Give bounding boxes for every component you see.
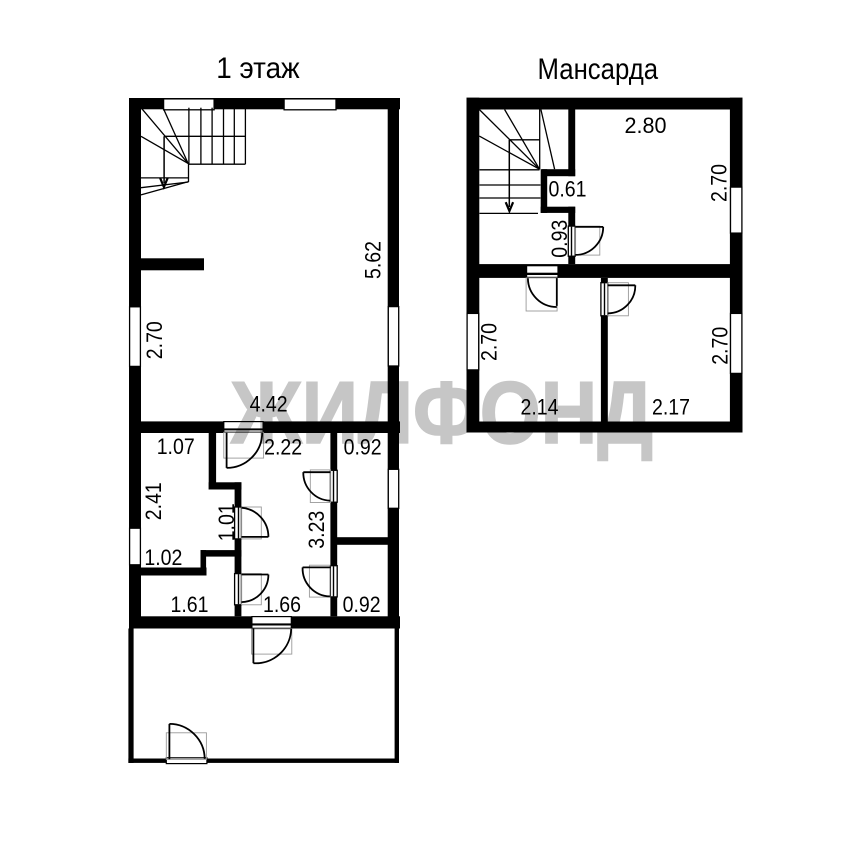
svg-text:0.93: 0.93 bbox=[547, 220, 572, 258]
svg-text:0.61: 0.61 bbox=[549, 177, 587, 202]
svg-text:1.01: 1.01 bbox=[214, 503, 239, 541]
svg-text:Мансарда: Мансарда bbox=[538, 53, 659, 86]
svg-text:1 этаж: 1 этаж bbox=[216, 52, 299, 85]
svg-text:ЖИЛФОНД: ЖИЛФОНД bbox=[230, 363, 653, 462]
svg-text:1.66: 1.66 bbox=[263, 592, 301, 617]
svg-text:2.70: 2.70 bbox=[708, 327, 733, 365]
svg-text:1.02: 1.02 bbox=[144, 545, 182, 570]
svg-text:3.23: 3.23 bbox=[304, 511, 329, 549]
svg-text:0.92: 0.92 bbox=[343, 592, 381, 617]
svg-text:1.07: 1.07 bbox=[157, 434, 195, 459]
svg-text:2.80: 2.80 bbox=[625, 113, 667, 138]
svg-text:2.70: 2.70 bbox=[142, 321, 167, 359]
svg-text:5.62: 5.62 bbox=[361, 241, 386, 279]
svg-text:1.61: 1.61 bbox=[171, 592, 209, 617]
svg-text:2.70: 2.70 bbox=[706, 164, 731, 202]
svg-text:2.17: 2.17 bbox=[652, 395, 690, 420]
svg-text:2.70: 2.70 bbox=[477, 323, 502, 361]
svg-text:2.41: 2.41 bbox=[141, 482, 166, 520]
